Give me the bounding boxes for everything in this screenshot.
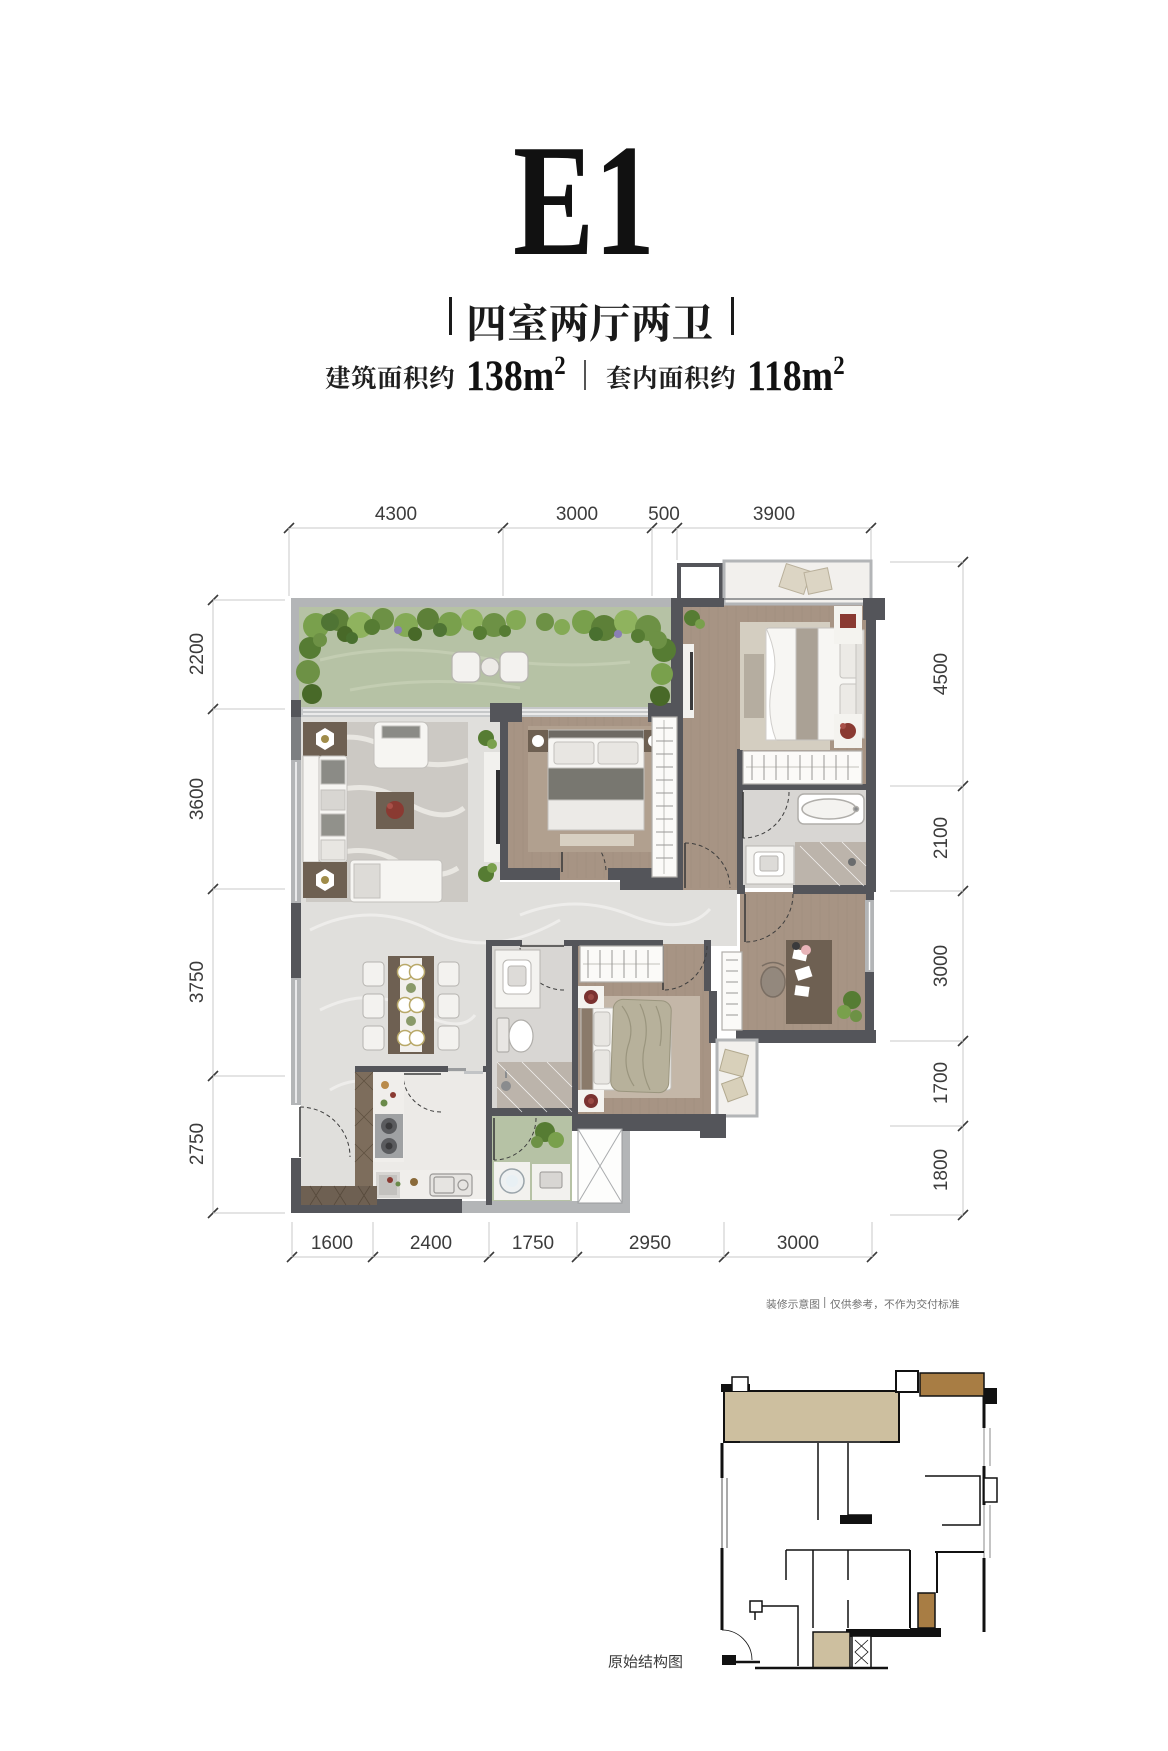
svg-text:1750: 1750: [512, 1233, 554, 1254]
svg-text:3600: 3600: [187, 778, 208, 820]
svg-text:4300: 4300: [375, 504, 417, 525]
svg-text:138m2: 138m2: [466, 352, 566, 400]
svg-text:2950: 2950: [629, 1233, 671, 1254]
svg-text:2750: 2750: [187, 1123, 208, 1165]
svg-text:4500: 4500: [931, 653, 952, 695]
svg-text:2100: 2100: [931, 817, 952, 859]
svg-text:500: 500: [648, 504, 680, 525]
svg-text:E1: E1: [513, 111, 655, 289]
svg-text:3750: 3750: [187, 961, 208, 1003]
svg-text:3000: 3000: [556, 504, 598, 525]
svg-text:3900: 3900: [753, 504, 795, 525]
svg-text:2400: 2400: [410, 1233, 452, 1254]
svg-text:2200: 2200: [187, 633, 208, 675]
svg-text:118m2: 118m2: [747, 352, 845, 400]
svg-text:1800: 1800: [931, 1149, 952, 1191]
svg-text:3000: 3000: [777, 1233, 819, 1254]
svg-text:1700: 1700: [931, 1062, 952, 1104]
svg-text:3000: 3000: [931, 945, 952, 987]
svg-text:1600: 1600: [311, 1233, 353, 1254]
